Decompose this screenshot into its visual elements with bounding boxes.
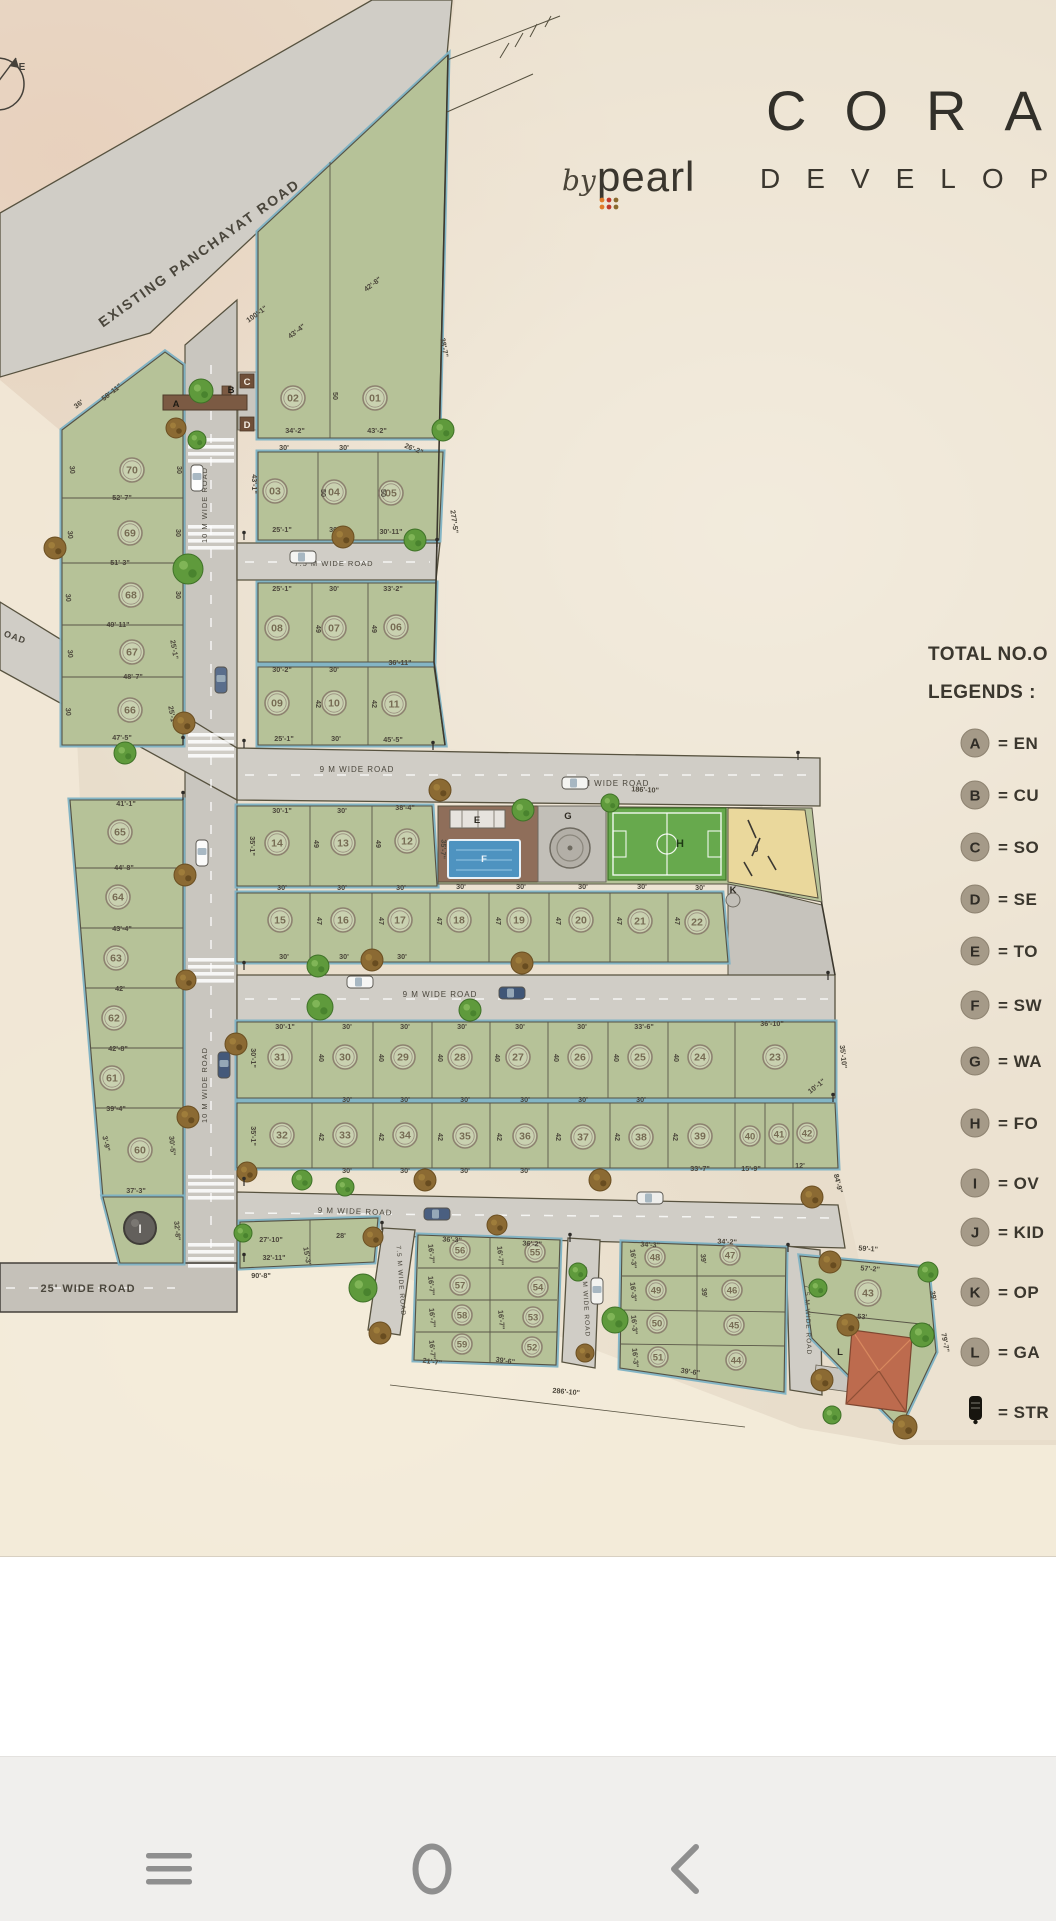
plot-09: 09 [265,691,289,715]
svg-text:18: 18 [453,915,465,927]
svg-text:30'-5": 30'-5" [167,1136,178,1156]
svg-text:D: D [244,420,251,431]
svg-text:= GA: = GA [998,1343,1040,1362]
site-plan-image: E010203040506070809101112131415161718192… [0,0,1056,1557]
plot-57: 57 [450,1275,470,1295]
svg-text:49'-11": 49'-11" [106,620,129,629]
svg-text:30': 30' [637,882,647,891]
svg-text:30: 30 [174,529,183,537]
svg-text:F: F [970,998,979,1015]
svg-text:23: 23 [769,1052,781,1064]
tree-icon [234,1224,252,1242]
svg-text:9 M WIDE ROAD: 9 M WIDE ROAD [320,765,395,774]
plot-63: 63 [104,946,128,970]
svg-text:11: 11 [388,699,399,711]
plot-23: 23 [763,1045,787,1069]
car-icon [562,777,588,789]
tree-icon [414,1169,436,1191]
site-plan-svg: E010203040506070809101112131415161718192… [0,0,1056,1556]
tree-icon [332,526,354,548]
svg-text:47: 47 [554,917,563,925]
plot-51: 51 [648,1347,668,1367]
tree-icon [569,1263,587,1281]
svg-text:34'-3": 34'-3" [640,1239,660,1249]
svg-text:30'-11": 30'-11" [379,527,402,536]
plot-16: 16 [331,908,355,932]
svg-text:33'-2": 33'-2" [383,584,403,593]
tree-icon [292,1170,312,1190]
svg-text:30': 30' [397,952,407,961]
legend-item-A: A= EN [961,729,1038,757]
svg-text:34: 34 [399,1130,411,1142]
tree-icon [188,431,206,449]
tree-icon [511,952,533,974]
svg-text:30': 30' [400,1095,410,1104]
plot-02: 02 [281,386,305,410]
svg-text:13: 13 [337,838,349,850]
svg-text:16'-3": 16'-3" [628,1249,639,1269]
plot-12: 12 [395,829,419,853]
svg-text:= CU: = CU [998,786,1039,805]
svg-text:30'-2": 30'-2" [272,665,292,674]
svg-text:12': 12' [795,1161,805,1170]
svg-text:30': 30' [339,443,349,452]
tree-icon [307,994,333,1020]
tree-icon [809,1279,827,1297]
svg-text:47: 47 [435,917,444,925]
tree-icon [349,1274,377,1302]
svg-text:43: 43 [862,1288,874,1300]
svg-text:30: 30 [64,707,74,716]
plot-62: 62 [102,1006,126,1030]
svg-text:H: H [676,838,684,850]
svg-text:45: 45 [729,1321,740,1332]
svg-text:53: 53 [528,1313,539,1324]
tree-icon [404,529,426,551]
legend-item-B: B= CU [961,781,1039,809]
tree-icon [361,949,383,971]
svg-text:28: 28 [454,1052,466,1064]
svg-text:32: 32 [276,1130,288,1142]
svg-text:35'-1": 35'-1" [249,1126,258,1146]
tree-icon [918,1262,938,1282]
svg-text:39': 39' [699,1254,709,1265]
svg-text:14: 14 [271,838,283,850]
svg-text:42: 42 [613,1133,622,1141]
svg-text:38: 38 [635,1132,647,1144]
svg-text:36'-2": 36'-2" [522,1238,542,1248]
svg-text:30': 30' [329,665,339,674]
svg-text:57'-2": 57'-2" [860,1263,880,1273]
svg-text:51: 51 [653,1353,664,1364]
svg-text:59: 59 [457,1340,468,1351]
svg-text:30': 30' [400,1022,410,1031]
svg-text:30': 30' [460,1095,470,1104]
home-button[interactable] [416,1847,449,1892]
svg-text:42: 42 [317,1133,326,1141]
plot-08: 08 [265,616,289,640]
svg-text:30'-1": 30'-1" [249,1048,258,1068]
car-icon [290,551,316,563]
svg-text:C: C [970,840,981,857]
car-icon [191,465,203,491]
svg-text:39'-4": 39'-4" [106,1104,126,1113]
svg-text:= FO: = FO [998,1114,1038,1133]
legend-heading: LEGENDS : [928,682,1036,703]
svg-text:41: 41 [774,1130,785,1141]
svg-text:32'-11": 32'-11" [262,1253,285,1262]
svg-text:70: 70 [126,465,138,477]
svg-text:F: F [481,854,487,865]
svg-text:30': 30' [337,883,347,892]
svg-text:47: 47 [494,917,503,925]
car-icon [215,667,227,693]
plot-49: 49 [646,1280,666,1300]
svg-text:16'-7": 16'-7" [426,1276,437,1296]
tree-icon [459,999,481,1021]
svg-text:34'-2": 34'-2" [717,1236,737,1246]
svg-text:42: 42 [436,1133,445,1141]
svg-text:36'-11": 36'-11" [388,658,411,667]
svg-text:30: 30 [339,1052,351,1064]
svg-text:26: 26 [574,1052,586,1064]
plot-43: 43 [855,1280,881,1306]
plot-58: 58 [452,1305,472,1325]
svg-text:30': 30' [636,1095,646,1104]
svg-text:47: 47 [673,917,682,925]
svg-text:06: 06 [390,622,402,634]
svg-text:30: 30 [66,649,76,658]
svg-text:16'-3": 16'-3" [629,1315,640,1335]
svg-text:= EN: = EN [998,734,1038,753]
plot-30: 30 [333,1045,357,1069]
legend-heading-total: TOTAL NO.O [928,644,1048,665]
plot-29: 29 [391,1045,415,1069]
tree-icon [601,794,619,812]
tree-icon [801,1186,823,1208]
svg-text:34'-2": 34'-2" [285,426,305,435]
svg-text:35'-1": 35'-1" [248,836,257,856]
svg-text:43'-1": 43'-1" [250,474,259,494]
svg-text:I: I [138,1222,141,1236]
svg-text:30': 30' [277,883,287,892]
svg-text:36': 36' [72,397,85,410]
svg-text:= SW: = SW [998,996,1042,1015]
svg-text:42: 42 [554,1133,563,1141]
svg-text:03: 03 [269,486,281,498]
svg-text:30': 30' [457,1022,467,1031]
plot-24: 24 [688,1045,712,1069]
tree-icon [307,955,329,977]
plot-48: 48 [645,1247,665,1267]
svg-text:16'-3": 16'-3" [630,1348,641,1368]
plot-40: 40 [740,1126,760,1146]
svg-text:30: 30 [66,530,76,539]
svg-text:42: 42 [377,1133,386,1141]
svg-text:59'-1": 59'-1" [858,1243,878,1253]
svg-text:B: B [228,385,235,396]
svg-text:39': 39' [928,1290,939,1301]
svg-text:61: 61 [106,1073,118,1085]
plot-47: 47 [720,1245,740,1265]
svg-text:30: 30 [68,465,78,474]
svg-text:= STR: = STR [998,1403,1049,1422]
svg-text:16'-3": 16'-3" [628,1282,639,1302]
svg-text:by: by [562,164,597,197]
plot-35: 35 [453,1124,477,1148]
svg-text:27'-10": 27'-10" [259,1235,283,1244]
back-button[interactable] [674,1847,696,1891]
svg-text:K: K [970,1285,981,1302]
svg-text:47'-5": 47'-5" [112,733,132,742]
svg-text:22: 22 [691,917,703,929]
svg-text:02: 02 [287,393,299,405]
legend-item-J: J= KID [961,1218,1044,1246]
svg-text:30': 30' [342,1166,352,1175]
svg-text:49: 49 [651,1286,662,1297]
svg-text:04: 04 [328,487,340,499]
svg-text:24: 24 [694,1052,706,1064]
legend-item-H: H= FO [961,1109,1038,1137]
svg-text:38'-4": 38'-4" [395,803,415,812]
svg-text:E: E [19,62,26,73]
svg-text:36: 36 [519,1131,531,1143]
svg-text:30': 30' [695,883,705,892]
svg-text:20: 20 [575,915,587,927]
plot-61: 61 [100,1066,124,1090]
plot-33: 33 [333,1123,357,1147]
svg-text:A: A [173,399,180,410]
tree-icon [336,1178,354,1196]
legend-item-C: C= SO [961,833,1039,861]
svg-text:69: 69 [124,528,136,540]
svg-text:40: 40 [612,1054,621,1062]
svg-text:39: 39 [694,1131,706,1143]
tree-icon [823,1406,841,1424]
svg-text:16: 16 [337,915,349,927]
plot-15: 15 [268,908,292,932]
svg-text:36'-3": 36'-3" [442,1234,462,1244]
svg-text:pearl: pearl [597,153,695,200]
plot-34: 34 [393,1123,417,1147]
svg-text:40: 40 [493,1054,502,1062]
svg-text:68: 68 [125,590,137,602]
svg-text:L: L [837,1347,843,1358]
tree-icon [225,1033,247,1055]
svg-text:25'-1": 25'-1" [274,734,294,743]
svg-text:40: 40 [377,1054,386,1062]
tree-icon [837,1314,859,1336]
plot-64: 64 [106,885,130,909]
plot-14: 14 [265,831,289,855]
menu-button[interactable] [146,1853,192,1885]
svg-text:44: 44 [731,1356,742,1367]
svg-text:28': 28' [336,1231,346,1240]
svg-text:37: 37 [577,1132,589,1144]
plot-07: 07 [322,616,346,640]
svg-text:43'-4": 43'-4" [112,924,132,933]
plot-59: 59 [452,1334,472,1354]
plot-31: 31 [268,1045,292,1069]
svg-text:16'-7": 16'-7" [426,1244,437,1264]
plot-39: 39 [688,1124,712,1148]
svg-text:49: 49 [370,625,379,633]
plot-22: 22 [685,910,709,934]
svg-text:L: L [970,1345,979,1362]
plot-38: 38 [629,1125,653,1149]
svg-text:49: 49 [374,840,383,848]
svg-text:33'-7": 33'-7" [690,1164,710,1173]
svg-text:35'-7": 35'-7" [438,839,448,859]
svg-text:51'-3": 51'-3" [110,558,130,567]
svg-text:57: 57 [455,1281,466,1292]
svg-text:= SO: = SO [998,838,1039,857]
svg-text:52: 52 [527,1343,538,1354]
plot-66: 66 [118,698,142,722]
svg-text:41'-1": 41'-1" [116,799,136,808]
plot-18: 18 [447,908,471,932]
car-icon [499,987,525,999]
plot-20: 20 [569,908,593,932]
plot-46: 46 [722,1280,742,1300]
streetlight-icon [242,531,246,540]
svg-text:30': 30' [400,1166,410,1175]
svg-text:30': 30' [460,1166,470,1175]
svg-text:B: B [970,788,981,805]
svg-text:30': 30' [339,952,349,961]
svg-text:DEVELOPERS: DEVELOPERS [760,163,1056,194]
svg-text:65: 65 [114,827,126,839]
plot-67: 67 [120,640,144,664]
car-icon [424,1208,450,1220]
svg-text:50: 50 [331,392,340,400]
tree-icon [589,1169,611,1191]
tree-icon [174,864,196,886]
svg-text:40: 40 [552,1054,561,1062]
svg-text:25' WIDE ROAD: 25' WIDE ROAD [40,1283,135,1295]
tree-icon [576,1344,594,1362]
svg-text:A: A [970,736,981,753]
svg-text:40: 40 [436,1054,445,1062]
svg-text:25: 25 [634,1052,646,1064]
brand-title: CORAL [766,79,1056,142]
plot-68: 68 [119,583,143,607]
svg-text:52'-7": 52'-7" [112,493,132,502]
svg-text:42: 42 [495,1133,504,1141]
plot-32: 32 [270,1123,294,1147]
tree-icon [363,1227,383,1247]
svg-text:60: 60 [134,1145,146,1157]
plot-42: 42 [797,1123,817,1143]
svg-text:67: 67 [126,647,138,659]
svg-text:= KID: = KID [998,1223,1044,1242]
tree-icon [173,554,203,584]
svg-text:19: 19 [513,915,525,927]
svg-text:30': 30' [520,1095,530,1104]
svg-text:50: 50 [379,489,388,497]
plot-52: 52 [522,1337,542,1357]
tree-icon [189,379,213,403]
car-icon [347,976,373,988]
svg-text:G: G [969,1054,981,1071]
plot-54: 54 [528,1277,548,1297]
svg-text:16'-7": 16'-7" [495,1246,506,1266]
svg-text:07: 07 [328,623,340,635]
car-icon [591,1278,603,1304]
svg-text:30: 30 [175,466,184,474]
tree-icon [512,799,534,821]
svg-text:36'-10": 36'-10" [760,1019,784,1028]
svg-text:39': 39' [700,1288,710,1299]
plot-13: 13 [331,831,355,855]
svg-text:= TO: = TO [998,942,1038,961]
streetlight-icon [242,739,246,748]
svg-text:30': 30' [396,883,406,892]
svg-text:35: 35 [459,1131,471,1143]
plot-53: 53 [523,1307,543,1327]
streetlight-icon [242,961,246,970]
plot-70: 70 [120,458,144,482]
svg-text:66: 66 [124,705,136,717]
svg-text:42: 42 [671,1133,680,1141]
tree-icon [44,537,66,559]
svg-text:30': 30' [516,882,526,891]
svg-text:47: 47 [377,917,386,925]
svg-text:27: 27 [512,1052,524,1064]
tree-icon [910,1323,934,1347]
svg-text:30': 30' [337,806,347,815]
tree-icon [166,418,186,438]
svg-text:30'-1": 30'-1" [272,806,292,815]
svg-text:25'-1": 25'-1" [272,525,292,534]
svg-text:30': 30' [329,584,339,593]
svg-text:30': 30' [279,952,289,961]
svg-text:50: 50 [652,1319,663,1330]
plot-25: 25 [628,1045,652,1069]
svg-text:E: E [474,815,480,826]
svg-text:46: 46 [727,1286,738,1297]
svg-text:50: 50 [319,489,328,497]
plot-27: 27 [506,1045,530,1069]
svg-text:21: 21 [634,916,646,928]
plot-01: 01 [363,386,387,410]
svg-text:55: 55 [530,1248,541,1259]
svg-text:G: G [564,811,571,822]
svg-text:J: J [753,844,758,855]
svg-text:47: 47 [725,1251,736,1262]
svg-text:30': 30' [520,1166,530,1175]
svg-text:47: 47 [615,917,624,925]
svg-text:53': 53' [857,1312,868,1322]
svg-text:30': 30' [578,882,588,891]
tree-icon [369,1322,391,1344]
plot-69: 69 [118,521,142,545]
plot-21: 21 [628,909,652,933]
svg-text:54: 54 [533,1283,544,1294]
svg-text:09: 09 [271,698,283,710]
plot-60: 60 [128,1138,152,1162]
tree-icon [176,970,196,990]
svg-text:= WA: = WA [998,1052,1042,1071]
svg-text:25'-1": 25'-1" [272,584,292,593]
plot-26: 26 [568,1045,592,1069]
svg-text:63: 63 [110,953,122,965]
svg-text:47: 47 [315,917,324,925]
svg-text:42'-8": 42'-8" [108,1044,128,1053]
svg-text:08: 08 [271,623,283,635]
svg-text:40: 40 [672,1054,681,1062]
svg-text:30': 30' [331,734,341,743]
